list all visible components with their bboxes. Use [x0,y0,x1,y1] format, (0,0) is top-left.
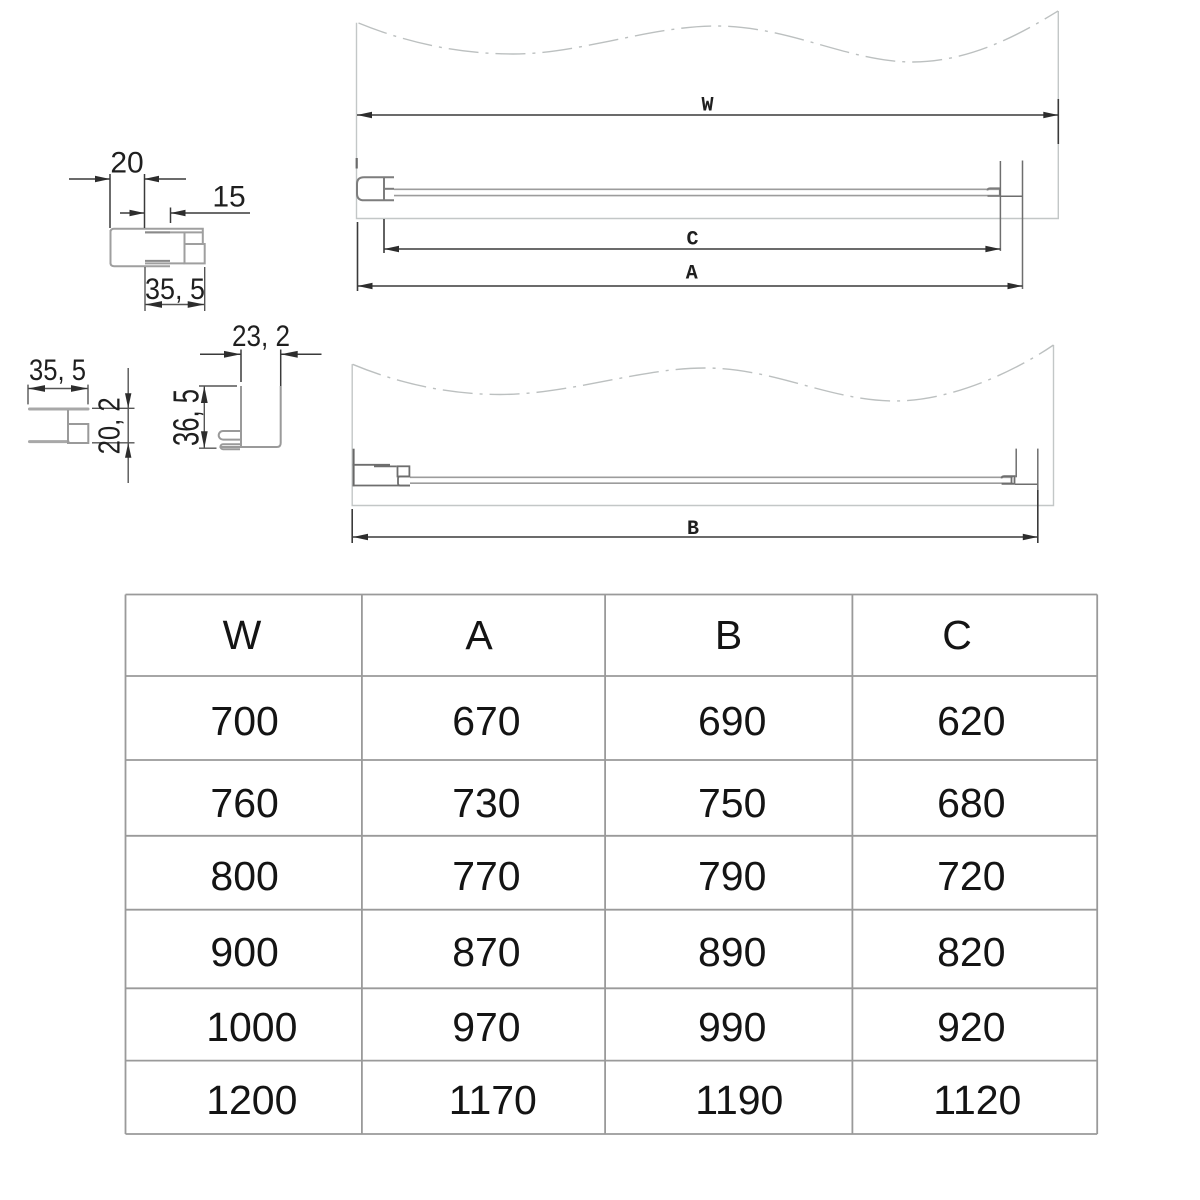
svg-text:700: 700 [210,698,278,744]
svg-text:870: 870 [452,929,520,975]
svg-text:B: B [687,518,699,541]
svg-text:680: 680 [937,780,1005,826]
svg-text:35, 5: 35, 5 [29,354,86,387]
svg-text:20: 20 [110,147,143,180]
svg-text:920: 920 [937,1004,1005,1050]
svg-text:35, 5: 35, 5 [145,273,205,306]
svg-text:C: C [942,612,972,658]
svg-text:W: W [223,612,262,658]
svg-text:20, 2: 20, 2 [92,397,127,454]
svg-text:1120: 1120 [933,1077,1021,1123]
svg-text:C: C [686,229,698,252]
svg-text:1190: 1190 [695,1077,783,1123]
svg-text:760: 760 [210,780,278,826]
svg-text:720: 720 [937,853,1005,899]
svg-text:23, 2: 23, 2 [232,320,290,353]
svg-text:A: A [465,612,493,658]
svg-text:800: 800 [210,853,278,899]
svg-text:620: 620 [937,698,1005,744]
svg-text:1200: 1200 [206,1077,297,1123]
svg-text:900: 900 [210,929,278,975]
svg-text:790: 790 [698,853,766,899]
svg-text:820: 820 [937,929,1005,975]
svg-text:750: 750 [698,780,766,826]
svg-text:770: 770 [452,853,520,899]
svg-text:A: A [686,263,698,286]
svg-text:890: 890 [698,929,766,975]
svg-text:690: 690 [698,698,766,744]
svg-text:36, 5: 36, 5 [166,389,207,446]
svg-text:B: B [715,612,742,658]
svg-text:1000: 1000 [206,1004,297,1050]
svg-text:990: 990 [698,1004,766,1050]
svg-text:730: 730 [452,780,520,826]
svg-text:970: 970 [452,1004,520,1050]
svg-text:670: 670 [452,698,520,744]
svg-text:15: 15 [212,181,245,214]
svg-text:W: W [701,95,713,118]
svg-text:1170: 1170 [449,1077,537,1123]
